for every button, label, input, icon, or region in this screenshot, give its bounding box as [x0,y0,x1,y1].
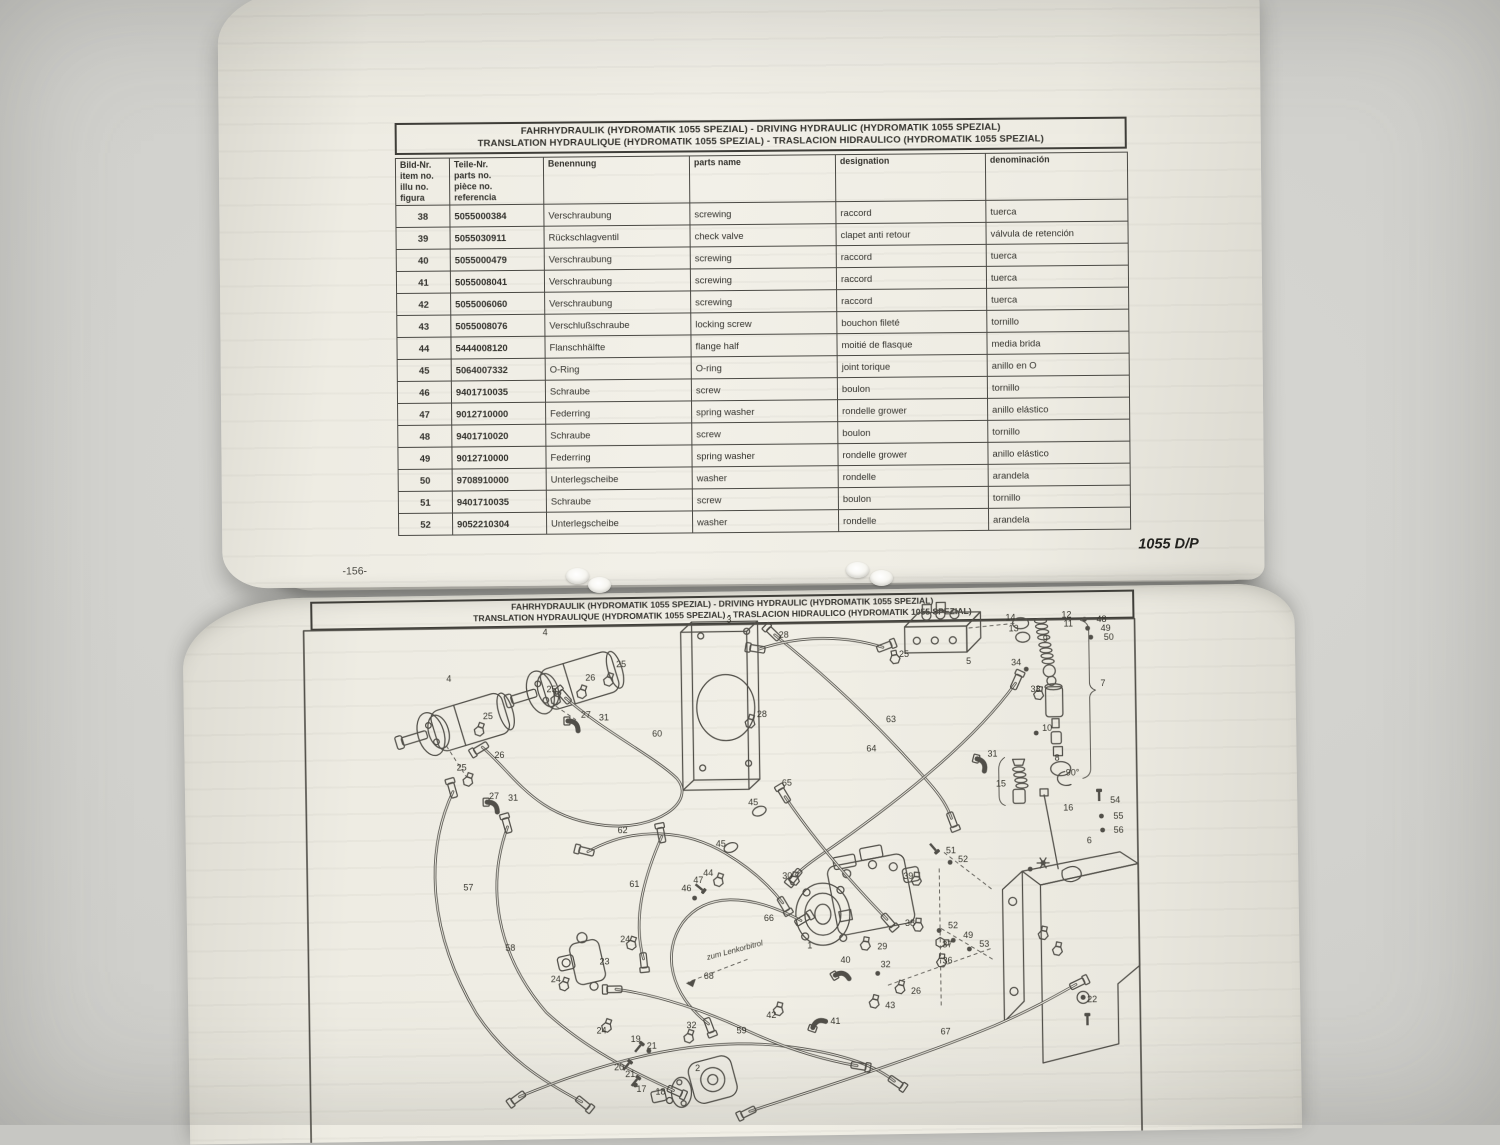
diagram-callout: 18 [655,1087,665,1097]
diagram-callout: 20 [614,1062,624,1072]
diagram-callout: 19 [631,1034,641,1044]
diagram-callout: 33 [1030,684,1040,694]
header-line: Teile-Nr. [454,159,539,171]
diagram-callout: 41 [830,1016,840,1026]
page-number: -156- [342,565,367,577]
cell-fr: boulon [837,376,987,399]
cell-part: 5055008076 [451,314,545,337]
diagram-callout: 16 [1063,802,1073,812]
diagram-callout: 26 [585,673,595,683]
hose-end-fittings [443,617,1092,1125]
cell-es: anillo elástico [988,397,1130,420]
diagram-callout: 56 [1114,825,1124,835]
diagram-callout: 64 [866,743,876,753]
diagram-callout: 47 [693,875,703,885]
cell-de: Flanschhälfte [545,335,691,358]
cell-en: washer [692,466,838,489]
diagram-callout: 31 [599,712,609,722]
diagram-callout: 51 [946,845,956,855]
diagram-callout: 26 [911,986,921,996]
diagram-callout: 23 [599,956,609,966]
diagram-callout: 32 [686,1020,696,1030]
cell-part: 5055000384 [450,204,544,227]
diagram-callout: 4 [446,674,451,684]
diagram-callout: 25 [616,659,626,669]
diagram-page: FAHRHYDRAULIK (HYDROMATIK 1055 SPEZIAL) … [182,583,1302,1144]
diagram-annotation: zum Lenkorbitrol [705,938,764,962]
cell-fr: clapet anti retour [836,222,986,245]
cell-fig: 43 [397,315,451,337]
header-line: item no. [400,171,445,182]
cell-de: Unterlegscheibe [546,511,692,534]
cell-de: Rückschlagventil [544,225,690,248]
cell-part: 5064007332 [451,358,545,381]
diagram-callout: 25 [483,711,493,721]
cell-fr: bouchon fileté [837,310,987,333]
exploded-parts-diagram: zum Lenkorbitrol 44325262527312526252731… [182,583,1302,1144]
cell-en: screw [692,422,838,445]
cell-part: 9052210304 [452,512,546,535]
cell-de: Verschraubung [544,203,690,226]
diagram-callout: 21 [625,1069,635,1079]
cell-de: Verschraubung [545,291,691,314]
diagram-callout: 27 [489,791,499,801]
cell-fig: 40 [396,249,450,271]
hose-highlight [775,632,952,821]
cell-part: 9401710035 [452,490,546,513]
diagram-callout: 24 [596,1025,606,1035]
cell-en: screwing [691,290,837,313]
cell-de: Schraube [545,379,691,402]
diagram-callout: 68 [704,971,714,981]
cell-es: tuerca [987,287,1129,310]
diagram-callout: 49 [963,930,973,940]
diagram-callout: 45 [748,797,758,807]
cell-es: arandela [988,463,1130,486]
hose-highlight [793,683,1018,874]
cell-part: 5055008041 [450,270,544,293]
cell-part: 9401710035 [451,380,545,403]
diagram-callout: 34 [1011,657,1021,667]
diagram-callout: 57 [463,882,473,892]
cell-en: locking screw [691,312,837,335]
hose-highlight [588,832,783,906]
diagram-callout: 59 [736,1025,746,1035]
cell-en: screw [692,488,838,511]
diagram-callout: 37 [942,939,952,949]
diagram-callout: 22 [1087,994,1097,1004]
diagram-callout: 17 [636,1084,646,1094]
diagram-callout: 15 [996,778,1006,788]
diagram-callout: 31 [987,749,997,759]
col-header-part-no: Teile-Nr. parts no. pièce no. referencia [449,157,543,205]
cell-fig: 45 [397,359,451,381]
cell-fr: raccord [836,266,986,289]
cell-en: O-ring [691,356,837,379]
cell-fig: 48 [398,425,452,447]
cell-en: check valve [690,224,836,247]
diagram-callout: 42 [766,1010,776,1020]
cell-de: Federring [546,445,692,468]
cell-es: tornillo [988,419,1130,442]
diagram-callout: 36 [942,955,952,965]
diagram-callout: 29 [877,941,887,951]
diagram-callout: 63 [886,714,896,724]
cell-es: tuerca [986,243,1128,266]
header-line: referencia [454,192,539,204]
diagram-callout: 32 [881,959,891,969]
diagram-callout: 43 [885,1000,895,1010]
cell-fr: rondelle [838,508,988,531]
diagram-callout: 90° [1066,767,1080,777]
cell-es: anillo en O [987,353,1129,376]
diagram-callout: 53 [979,939,989,949]
cell-en: spring washer [692,444,838,467]
diagram-callout: 52 [948,920,958,930]
hose-highlight [638,837,664,959]
binder-hole [870,570,893,586]
diagram-callout: 38 [905,918,915,928]
diagram-callout: 55 [1113,811,1123,821]
table-title: FAHRHYDRAULIK (HYDROMATIK 1055 SPEZIAL) … [395,117,1127,155]
cell-fr: moitié de flasque [837,332,987,355]
diagram-callout: 46 [681,883,691,893]
cell-part: 5055000479 [450,248,544,271]
col-header-benennung: Benennung [543,156,689,204]
diagram-callout: 21 [647,1041,657,1051]
diagram-callout: 1 [807,940,812,950]
diagram-callout: 40 [840,955,850,965]
cell-fig: 39 [396,227,450,249]
filter-assembly [996,617,1105,870]
binder-hole [588,577,611,593]
cell-fr: boulon [838,486,988,509]
cell-en: flange half [691,334,837,357]
cell-es: tornillo [987,309,1129,332]
diagram-callout: 4 [543,627,548,637]
diagram-callout: 30 [782,871,792,881]
cell-part: 9012710000 [452,446,546,469]
binder-hole [846,562,869,578]
table-header-row: Bild-Nr. item no. illu no. figura Teile-… [395,152,1127,205]
diagram-callout: 27 [581,710,591,720]
binder-hole [566,568,589,584]
diagram-callout: 5 [966,656,971,666]
col-header-designation: designation [835,153,985,201]
cell-fig: 42 [397,293,451,315]
cell-fr: joint torique [837,354,987,377]
cell-fr: raccord [836,200,986,223]
cell-de: Federring [546,401,692,424]
diagram-callout: 2 [695,1063,700,1073]
cell-fig: 49 [398,447,452,469]
diagram-callout: 8 [1054,753,1059,763]
cell-es: válvula de retención [986,221,1128,244]
diagram-callout: 31 [508,793,518,803]
cell-es: tuerca [986,199,1128,222]
cell-part: 5444008120 [451,336,545,359]
diagram-callout: 60 [652,729,662,739]
cell-fr: rondelle grower [838,442,988,465]
diagram-callout: 28 [757,709,767,719]
cell-de: Unterlegscheibe [546,467,692,490]
header-line: illu no. [400,182,445,193]
diagram-callout: 65 [782,778,792,788]
diagram-callout: 26 [494,750,504,760]
parts-table-wrap: FAHRHYDRAULIK (HYDROMATIK 1055 SPEZIAL) … [395,117,1131,536]
header-line: figura [400,192,445,203]
cell-en: spring washer [692,400,838,423]
cell-fig: 44 [397,337,451,359]
diagram-callout: 10 [1042,723,1052,733]
diagram-callout: 52 [958,854,968,864]
diagram-callout: 6 [1087,835,1092,845]
callouts-layer: 4432526252731252625273160284528255636465… [445,609,1127,1100]
cell-fig: 51 [398,491,452,513]
cell-fig: 50 [398,469,452,491]
leader-lines [445,623,1021,1015]
oil-tank [1002,852,1141,1064]
cell-fr: raccord [837,288,987,311]
cell-de: Verschraubung [544,269,690,292]
cell-es: arandela [988,507,1130,530]
diagram-callout: 13 [1009,623,1019,633]
cell-de: Schraube [546,423,692,446]
cell-part: 9012710000 [452,402,546,425]
photo-of-open-parts-manual: FAHRHYDRAULIK (HYDROMATIK 1055 SPEZIAL) … [0,0,1500,1125]
diagram-callout: 25 [457,762,467,772]
diagram-callout: 3 [726,615,731,625]
cell-fig: 38 [396,205,450,227]
cell-es: tuerca [986,265,1128,288]
cell-en: screwing [690,202,836,225]
cell-de: O-Ring [545,357,691,380]
cell-en: screwing [690,246,836,269]
cell-part: 9708910000 [452,468,546,491]
cell-fr: rondelle [838,464,988,487]
cell-fig: 47 [398,403,452,425]
diagram-callout: 45 [716,839,726,849]
cell-en: washer [692,510,838,533]
diagram-callout: 67 [941,1026,951,1036]
diagram-callout: 25 [546,684,556,694]
wheel-motors [389,647,629,766]
parts-table: Bild-Nr. item no. illu no. figura Teile-… [395,152,1131,536]
cell-fr: raccord [836,244,986,267]
cell-part: 5055030911 [450,226,544,249]
header-line: parts no. [454,170,539,182]
diagram-callout: 25 [899,649,909,659]
cell-de: Verschraubung [544,247,690,270]
diagram-callout: 11 [1063,618,1072,628]
diagram-callout: 9 [1043,634,1048,644]
cell-fr: rondelle grower [838,398,988,421]
cell-es: media brida [987,331,1129,354]
cell-de: Verschlußschraube [545,313,691,336]
cell-fig: 52 [398,513,452,535]
diagram-callout: 61 [629,879,639,889]
cell-en: screw [691,378,837,401]
diagram-callout: 24 [551,974,561,984]
cell-de: Schraube [546,489,692,512]
header-line: Bild-Nr. [400,160,445,171]
valve-block [904,602,981,653]
diagram-callout: 39 [903,871,913,881]
cell-fig: 41 [396,271,450,293]
cell-fig: 46 [397,381,451,403]
diagram-callout: 28 [779,630,789,640]
annotation-arrowhead [686,979,696,987]
parts-list-page: FAHRHYDRAULIK (HYDROMATIK 1055 SPEZIAL) … [217,0,1264,589]
diagram-callout: 66 [764,913,774,923]
diagram-callout: 50 [1104,632,1114,642]
diagram-callout: 58 [505,943,515,953]
cell-es: anillo elástico [988,441,1130,464]
cell-en: screwing [690,268,836,291]
cell-part: 5055006060 [451,292,545,315]
diagram-callout: 7 [1100,678,1105,688]
cell-es: tornillo [987,375,1129,398]
cell-es: tornillo [988,485,1130,508]
doc-code: 1055 D/P [1138,536,1199,553]
cell-part: 9401710020 [452,424,546,447]
col-header-parts-name: parts name [689,155,835,203]
diagram-callout: 14 [1005,612,1015,622]
header-line: pièce no. [454,181,539,193]
diagram-callout: 44 [703,868,713,878]
col-header-denominacion: denominación [985,152,1127,200]
diagram-frame [304,619,1145,1145]
diagram-callout: 62 [618,825,628,835]
col-header-figure: Bild-Nr. item no. illu no. figura [395,158,449,205]
oil-cooler [681,621,760,790]
table-body: 385055000384Verschraubungscrewingraccord… [396,199,1131,535]
diagram-callout: 54 [1110,795,1120,805]
diagram-callout: 24 [620,934,630,944]
cell-fr: boulon [838,420,988,443]
